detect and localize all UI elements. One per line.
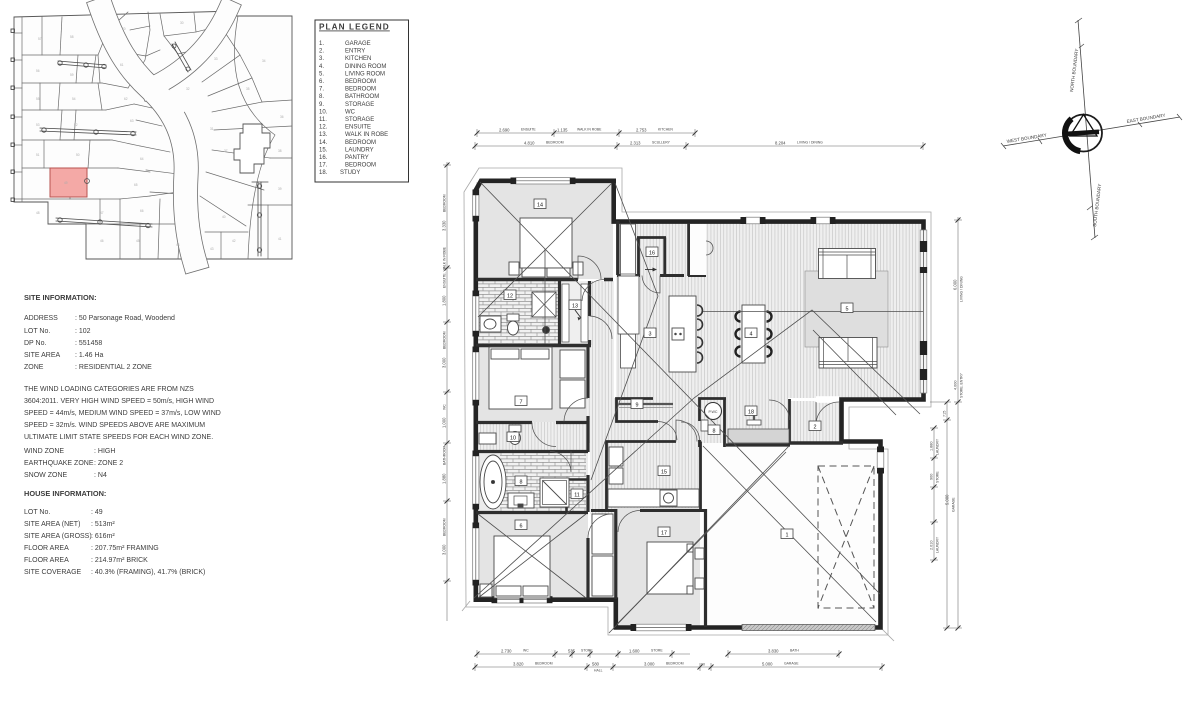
svg-text:33: 33 — [214, 57, 218, 61]
svg-text:46: 46 — [100, 239, 104, 243]
svg-text:WC: WC — [523, 649, 529, 653]
svg-text:17.: 17. — [319, 163, 328, 169]
svg-text:1: 1 — [786, 533, 789, 539]
svg-text:2.: 2. — [319, 49, 324, 55]
svg-text:PLAN LEGEND: PLAN LEGEND — [319, 23, 390, 32]
svg-text:THE WIND LOADING CATEGORIES AR: THE WIND LOADING CATEGORIES ARE FROM NZS — [24, 386, 194, 393]
svg-text:35: 35 — [246, 87, 250, 91]
svg-text:SITE AREA (GROSS): SITE AREA (GROSS) — [24, 533, 92, 540]
svg-text:2.730: 2.730 — [501, 649, 512, 654]
svg-text:715: 715 — [943, 411, 947, 417]
svg-text:5: 5 — [846, 307, 849, 313]
svg-text:8: 8 — [520, 480, 523, 486]
svg-text:NORTH BOUNDARY: NORTH BOUNDARY — [1069, 48, 1079, 92]
svg-text:BATHROOM: BATHROOM — [345, 94, 379, 100]
svg-text:ZONE: ZONE — [24, 364, 44, 371]
svg-text:3.000: 3.000 — [442, 357, 447, 368]
svg-text:14: 14 — [537, 203, 543, 209]
svg-text:90: 90 — [701, 663, 705, 667]
svg-text:5.000: 5.000 — [945, 494, 950, 505]
svg-text:KITCHEN: KITCHEN — [345, 56, 371, 62]
svg-text:SCULLERY: SCULLERY — [652, 141, 671, 145]
svg-text:BATH: BATH — [790, 649, 799, 653]
svg-text:: 551458: : 551458 — [75, 340, 102, 347]
svg-text:6.000: 6.000 — [953, 279, 958, 290]
svg-text:57: 57 — [38, 37, 42, 41]
svg-text:KITCHEN: KITCHEN — [658, 128, 673, 132]
svg-text:61: 61 — [120, 63, 124, 67]
svg-text:STORAGE: STORAGE — [345, 102, 374, 108]
svg-text:BEDROOM: BEDROOM — [535, 662, 553, 666]
svg-text:52: 52 — [74, 123, 78, 127]
svg-text:ULTIMATE LIMIT STATE SPEEDS FO: ULTIMATE LIMIT STATE SPEEDS FOR EACH WIN… — [24, 434, 213, 441]
svg-text:LOT No.: LOT No. — [24, 328, 50, 335]
svg-text:WIND ZONE: WIND ZONE — [24, 448, 64, 455]
svg-text:: N4: : N4 — [94, 472, 107, 479]
svg-text:STORE. ENTRY: STORE. ENTRY — [960, 372, 964, 398]
svg-text:SPEED = 32m/s. WIND SPEEDS ABO: SPEED = 32m/s. WIND SPEEDS ABOVE ARE MAX… — [24, 422, 205, 429]
svg-text:47: 47 — [100, 211, 104, 215]
svg-text:9.: 9. — [319, 102, 324, 108]
svg-text:2.313: 2.313 — [630, 141, 641, 146]
svg-text:6: 6 — [520, 524, 523, 530]
svg-text:2.753: 2.753 — [636, 128, 647, 133]
svg-text:GARAGE: GARAGE — [784, 662, 799, 666]
svg-text:: HIGH: : HIGH — [94, 448, 115, 455]
svg-text:17: 17 — [661, 531, 667, 537]
svg-text:11: 11 — [574, 493, 580, 499]
svg-text:P.WC: P.WC — [709, 410, 718, 414]
svg-text:DP No.: DP No. — [24, 340, 46, 347]
svg-text:BATHROOM: BATHROOM — [443, 445, 447, 465]
svg-text:WALK IN ROBE: WALK IN ROBE — [345, 132, 388, 138]
svg-text:STORE: STORE — [651, 649, 663, 653]
svg-text:41: 41 — [278, 237, 282, 241]
svg-text:2.690: 2.690 — [499, 128, 510, 133]
svg-text:34: 34 — [262, 59, 266, 63]
svg-text:30: 30 — [180, 21, 184, 25]
svg-text:: ZONE 2: : ZONE 2 — [94, 460, 123, 467]
svg-text:ENSUITE: ENSUITE — [345, 125, 371, 131]
svg-text:9: 9 — [636, 403, 639, 409]
svg-text:11.: 11. — [319, 117, 327, 123]
svg-text:STUDY: STUDY — [340, 170, 360, 176]
svg-text:10.: 10. — [319, 109, 328, 115]
svg-text:62: 62 — [124, 97, 128, 101]
svg-text:65: 65 — [134, 183, 138, 187]
svg-text:: RESIDENTIAL 2 ZONE: : RESIDENTIAL 2 ZONE — [75, 364, 152, 371]
svg-text:: 207.75m² FRAMING: : 207.75m² FRAMING — [91, 545, 159, 552]
svg-text:8.: 8. — [319, 94, 324, 100]
svg-text:GARAGE: GARAGE — [952, 497, 956, 512]
svg-text:56: 56 — [36, 69, 40, 73]
svg-text:50: 50 — [76, 153, 80, 157]
svg-text:8: 8 — [713, 429, 716, 435]
svg-text:49: 49 — [64, 181, 68, 185]
svg-text:45: 45 — [136, 239, 140, 243]
svg-text:FLOOR AREA: FLOOR AREA — [24, 557, 69, 564]
svg-text:BEDROOM: BEDROOM — [443, 518, 447, 536]
svg-text:14.: 14. — [319, 140, 328, 146]
svg-text:1.880: 1.880 — [442, 473, 447, 484]
svg-text:1.600: 1.600 — [629, 649, 640, 654]
svg-text:3.: 3. — [319, 56, 324, 62]
svg-text:LIVING / DINING: LIVING / DINING — [797, 141, 823, 145]
svg-text:5.: 5. — [319, 71, 324, 77]
svg-text:GARAGE: GARAGE — [345, 41, 371, 47]
svg-text:15: 15 — [661, 470, 667, 476]
svg-text:40: 40 — [222, 215, 226, 219]
svg-text:LOT No.: LOT No. — [24, 509, 50, 516]
svg-text:EARTHQUAKE ZONE: EARTHQUAKE ZONE — [24, 460, 94, 467]
svg-text:FLOOR AREA: FLOOR AREA — [24, 545, 69, 552]
svg-text:48: 48 — [36, 211, 40, 215]
svg-text:63: 63 — [130, 119, 134, 123]
svg-text:1.000: 1.000 — [442, 417, 447, 428]
svg-text:55: 55 — [36, 97, 40, 101]
svg-text:16: 16 — [649, 251, 655, 257]
svg-text:: 50 Parsonage Road, Woodend: : 50 Parsonage Road, Woodend — [75, 315, 175, 322]
svg-text:LAUNDRY: LAUNDRY — [936, 536, 940, 553]
svg-text:SITE INFORMATION:: SITE INFORMATION: — [24, 293, 97, 302]
svg-text:5.000: 5.000 — [762, 662, 773, 667]
svg-text:18.: 18. — [319, 170, 328, 176]
svg-text:BEDROOM: BEDROOM — [345, 163, 376, 169]
svg-text:2: 2 — [814, 425, 817, 431]
svg-text:ENSUITE. WALK IN ROBE: ENSUITE. WALK IN ROBE — [443, 246, 447, 288]
svg-text:1.: 1. — [319, 41, 324, 47]
svg-text:: 616m²: : 616m² — [91, 533, 115, 540]
svg-text:ENSUITE: ENSUITE — [521, 128, 536, 132]
svg-text:HALL: HALL — [594, 669, 603, 673]
svg-text:8.204: 8.204 — [775, 141, 786, 146]
svg-text:53: 53 — [36, 123, 40, 127]
svg-text:10: 10 — [510, 436, 516, 442]
svg-text:DINING ROOM: DINING ROOM — [345, 64, 386, 70]
svg-text:12: 12 — [507, 294, 513, 300]
svg-text:3.330: 3.330 — [442, 220, 447, 231]
svg-text:66: 66 — [140, 209, 144, 213]
svg-text:3.000: 3.000 — [442, 544, 447, 555]
svg-text:BEDROOM: BEDROOM — [666, 662, 684, 666]
svg-text:535: 535 — [568, 649, 576, 654]
svg-text:59: 59 — [70, 73, 74, 77]
svg-text:44: 44 — [176, 243, 180, 247]
svg-text:WALK IN ROBE: WALK IN ROBE — [577, 128, 602, 132]
svg-text:7: 7 — [520, 400, 523, 406]
svg-text:1.135: 1.135 — [557, 128, 568, 133]
svg-text:60: 60 — [122, 27, 126, 31]
svg-text:1.800: 1.800 — [442, 295, 447, 306]
svg-text:ADDRESS: ADDRESS — [24, 315, 58, 322]
svg-text:STORAGE: STORAGE — [345, 117, 374, 123]
svg-text:ENTRY: ENTRY — [345, 49, 365, 55]
svg-text:WC: WC — [443, 404, 447, 410]
svg-text:1.880: 1.880 — [930, 441, 934, 451]
svg-text:: 214.97m² BRICK: : 214.97m² BRICK — [91, 557, 148, 564]
svg-text:: 40.3% (FRAMING), 41.7% (BRIC: : 40.3% (FRAMING), 41.7% (BRICK) — [91, 569, 205, 576]
svg-text:4.810: 4.810 — [524, 141, 535, 146]
svg-text:: 1.46 Ha: : 1.46 Ha — [75, 352, 104, 359]
svg-text:900: 900 — [930, 474, 934, 480]
svg-text:6.: 6. — [319, 79, 324, 85]
svg-text:BEDROOM: BEDROOM — [546, 141, 564, 145]
svg-text:12.: 12. — [319, 125, 328, 131]
svg-text:: 513m²: : 513m² — [91, 521, 115, 528]
svg-text:BEDROOM: BEDROOM — [345, 79, 376, 85]
svg-text:3: 3 — [649, 332, 652, 338]
svg-text:4.000: 4.000 — [954, 380, 958, 390]
svg-text:BEDROOM: BEDROOM — [443, 331, 447, 349]
svg-text:SITE AREA (NET): SITE AREA (NET) — [24, 521, 80, 528]
svg-text:4: 4 — [750, 332, 753, 338]
svg-text:SPEED = 44m/s, MEDIUM WIND SPE: SPEED = 44m/s, MEDIUM WIND SPEED = 37m/s… — [24, 410, 221, 417]
svg-text:18: 18 — [748, 410, 754, 416]
svg-text:: 49: : 49 — [91, 509, 103, 516]
svg-text:PANTRY: PANTRY — [345, 155, 369, 161]
svg-text:43: 43 — [210, 247, 214, 251]
svg-text:58: 58 — [70, 35, 74, 39]
svg-text:32: 32 — [186, 87, 190, 91]
svg-text:SOUTH BOUNDARY: SOUTH BOUNDARY — [1092, 184, 1102, 228]
svg-text:BEDROOM: BEDROOM — [345, 140, 376, 146]
svg-text:3604:2011. VERY HIGH WIND SPEE: 3604:2011. VERY HIGH WIND SPEED = 50m/s,… — [24, 398, 214, 405]
svg-text:39: 39 — [278, 187, 282, 191]
svg-text:36: 36 — [280, 115, 284, 119]
svg-text:580: 580 — [592, 662, 600, 667]
svg-text:SITE COVERAGE: SITE COVERAGE — [24, 569, 82, 576]
svg-text:38: 38 — [278, 149, 282, 153]
svg-text:SITE AREA: SITE AREA — [24, 352, 61, 359]
svg-text:STORE: STORE — [581, 649, 593, 653]
svg-text:31: 31 — [210, 127, 214, 131]
svg-text:54: 54 — [72, 97, 76, 101]
svg-text:BEDROOM: BEDROOM — [345, 87, 376, 93]
svg-text:3.830: 3.830 — [768, 649, 779, 654]
svg-text:LAUNDRY: LAUNDRY — [936, 438, 940, 455]
svg-text:LAUNDRY: LAUNDRY — [345, 147, 374, 153]
svg-text:3.820: 3.820 — [513, 662, 524, 667]
svg-text:51: 51 — [36, 153, 40, 157]
svg-text:2.010: 2.010 — [930, 540, 934, 550]
svg-text:4.: 4. — [319, 64, 324, 70]
svg-text:13: 13 — [572, 304, 578, 310]
svg-text:LIVING ROOM: LIVING ROOM — [345, 71, 385, 77]
svg-text:STORE: STORE — [936, 471, 940, 483]
svg-text:13.: 13. — [319, 132, 328, 138]
svg-text:37: 37 — [224, 149, 228, 153]
svg-text:16.: 16. — [319, 155, 328, 161]
svg-text:3.000: 3.000 — [644, 662, 655, 667]
svg-text:64: 64 — [140, 157, 144, 161]
svg-text:SNOW ZONE: SNOW ZONE — [24, 472, 67, 479]
svg-text:LIVING / DINING: LIVING / DINING — [960, 276, 964, 302]
svg-text:: 102: : 102 — [75, 328, 91, 335]
svg-text:WC: WC — [345, 109, 356, 115]
svg-text:7.: 7. — [319, 87, 324, 93]
svg-text:42: 42 — [232, 239, 236, 243]
svg-text:HOUSE INFORMATION:: HOUSE INFORMATION: — [24, 489, 106, 498]
svg-text:15.: 15. — [319, 147, 328, 153]
svg-text:BEDROOM: BEDROOM — [443, 194, 447, 212]
